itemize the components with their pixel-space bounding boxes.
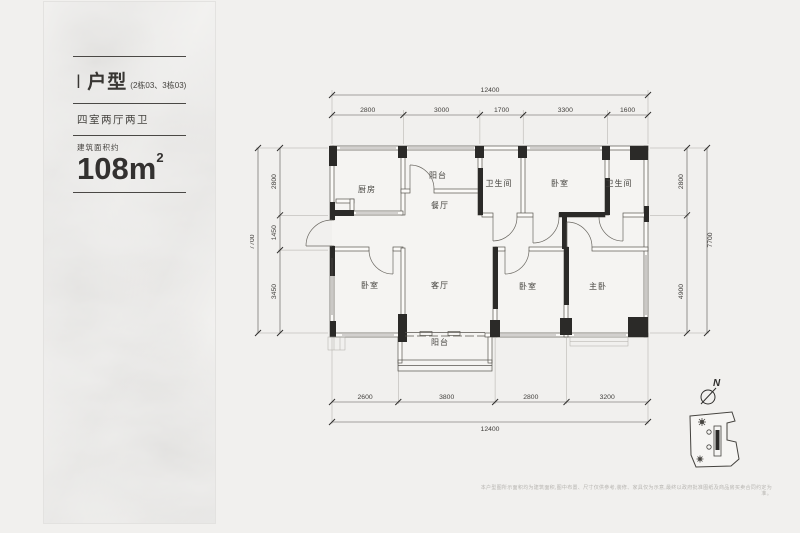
room-label-balcony-bottom: 阳台 [431,337,449,347]
rooms-summary: 四室两厅两卫 [73,104,186,135]
dim-right-seg-1: 2800 [678,174,685,189]
area-number: 108 [77,151,129,186]
dim-left-seg-2: 1450 [271,225,278,240]
dimensions-top: 12400 2800 3000 1700 3300 1600 [329,87,651,118]
dim-bottom-seg-2: 3800 [439,394,454,401]
type-code: I [77,72,80,94]
dim-bottom-total: 12400 [481,426,500,433]
dim-bottom-seg-1: 2600 [358,394,373,401]
dim-bottom-seg-3: 2800 [523,394,538,401]
dim-left-total: 7700 [250,234,256,249]
floor-plan: 12400 2800 3000 1700 3300 1600 2600 3800… [250,70,780,470]
area-unit: m [129,151,157,186]
room-label-bath-right: 卫生间 [606,178,633,188]
dim-top-total: 12400 [481,87,500,94]
dim-top-seg-5: 1600 [620,107,635,114]
dim-right-total: 7700 [707,232,714,247]
floor-plan-svg: 12400 2800 3000 1700 3300 1600 2600 3800… [250,70,780,470]
north-label: N [713,378,721,389]
room-label-balcony-top: 阳台 [429,170,447,180]
tree-icon [698,418,706,426]
site-map [690,412,739,467]
room-label-bedroom-top: 卧室 [551,178,569,188]
room-label-bedroom-left: 卧室 [361,280,379,290]
unit-info-panel: I 户型 (2栋03、3栋03) 四室两厅两卫 建筑面积约 108m2 [73,56,186,193]
dim-left-seg-1: 2800 [271,174,278,189]
dim-left-seg-3: 3450 [271,284,278,299]
disclaimer-text: 本户型图所示面积均为建筑面积,图中布置、尺寸仅供参考,装修、家具仅为示意,最终以… [480,485,772,497]
type-name: 户型 [87,67,127,94]
room-label-kitchen: 厨房 [358,184,376,194]
dim-top-seg-4: 3300 [558,107,573,114]
compass: N [701,378,721,404]
dimensions-bottom: 2600 3800 2800 3200 12400 [329,394,651,433]
tree-icon [697,456,704,463]
room-label-master: 主卧 [589,281,607,291]
room-label-bath-left: 卫生间 [486,178,513,188]
area-block: 建筑面积约 108m2 [73,136,186,192]
floorplan-page: I 户型 (2栋03、3栋03) 四室两厅两卫 建筑面积约 108m2 [0,0,800,533]
highlighted-building [716,430,720,450]
area-value: 108m2 [77,153,184,186]
divider-rule [73,192,186,193]
type-title: I 户型 (2栋03、3栋03) [73,57,186,103]
dim-top-seg-3: 1700 [494,107,509,114]
type-subtitle: (2栋03、3栋03) [130,80,186,91]
dimensions-right: 2800 4900 7700 [678,145,714,336]
dim-bottom-seg-4: 3200 [600,394,615,401]
dim-top-seg-2: 3000 [434,107,449,114]
room-label-dining: 餐厅 [431,201,449,210]
dimensions-left: 7700 2800 1450 3450 [250,145,283,336]
room-label-bedroom-mid: 卧室 [519,281,537,291]
room-label-living: 客厅 [431,280,449,290]
area-exponent: 2 [156,150,163,165]
dim-top-seg-1: 2800 [360,107,375,114]
dim-right-seg-2: 4900 [678,284,685,299]
